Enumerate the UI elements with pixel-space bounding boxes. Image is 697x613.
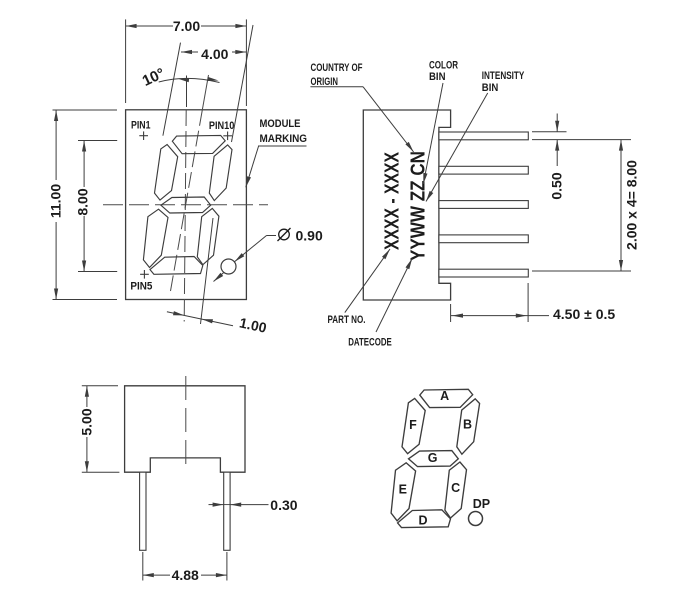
svg-text:4.00: 4.00	[201, 46, 228, 62]
svg-text:G: G	[428, 451, 438, 465]
svg-text:MARKING: MARKING	[260, 133, 308, 145]
svg-text:BIN: BIN	[482, 82, 499, 94]
svg-text:4.88: 4.88	[172, 567, 199, 583]
svg-text:4.50 ± 0.5: 4.50 ± 0.5	[553, 306, 615, 322]
svg-text:0.90: 0.90	[296, 228, 323, 244]
svg-text:XXXX - XXXX: XXXX - XXXX	[382, 151, 404, 250]
svg-text:DATECODE: DATECODE	[348, 337, 392, 349]
svg-text:INTENSITY: INTENSITY	[482, 70, 525, 82]
svg-text:11.00: 11.00	[48, 184, 64, 218]
svg-text:COLOR: COLOR	[429, 60, 458, 72]
svg-text:PART NO.: PART NO.	[328, 314, 366, 326]
svg-text:5.00: 5.00	[78, 408, 94, 435]
svg-text:D: D	[418, 513, 427, 527]
svg-text:PIN5: PIN5	[130, 281, 152, 293]
svg-text:COUNTRY OF: COUNTRY OF	[311, 62, 363, 74]
svg-text:DP: DP	[473, 497, 490, 511]
svg-text:0.30: 0.30	[270, 497, 297, 513]
svg-text:8.00: 8.00	[74, 188, 90, 215]
svg-text:2.00 x 4= 8.00: 2.00 x 4= 8.00	[624, 160, 640, 250]
svg-text:1.00: 1.00	[238, 314, 268, 335]
svg-text:E: E	[399, 483, 407, 497]
svg-text:B: B	[463, 418, 472, 432]
svg-text:PIN10: PIN10	[209, 120, 235, 132]
svg-text:PIN1: PIN1	[131, 120, 151, 132]
svg-text:F: F	[409, 418, 417, 432]
svg-text:0.50: 0.50	[549, 172, 565, 199]
svg-text:C: C	[451, 481, 460, 495]
svg-text:7.00: 7.00	[173, 18, 200, 34]
svg-text:BIN: BIN	[429, 71, 446, 83]
svg-text:10°: 10°	[140, 65, 168, 90]
svg-text:A: A	[440, 389, 449, 403]
svg-text:MODULE: MODULE	[260, 118, 301, 130]
